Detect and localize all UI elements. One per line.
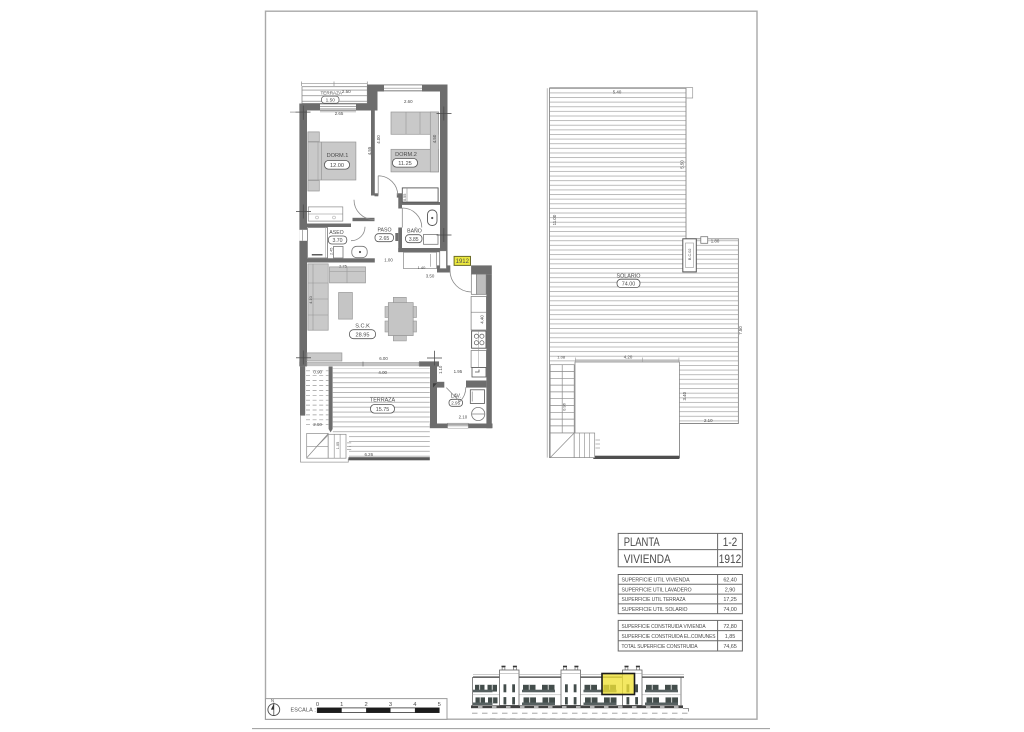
svg-text:1912: 1912 — [456, 259, 470, 265]
svg-text:5.40: 5.40 — [613, 90, 622, 95]
svg-text:TERRAZA: TERRAZA — [321, 90, 343, 95]
svg-text:S.C.K: S.C.K — [355, 324, 370, 330]
svg-text:3.70: 3.70 — [332, 238, 342, 244]
svg-text:1912: 1912 — [719, 552, 742, 566]
svg-text:2: 2 — [364, 702, 367, 708]
svg-text:DORM.2: DORM.2 — [395, 152, 417, 158]
svg-text:3: 3 — [389, 702, 392, 708]
svg-text:0: 0 — [316, 702, 319, 708]
svg-text:4.10: 4.10 — [308, 295, 313, 304]
svg-text:1.80: 1.80 — [711, 239, 720, 244]
svg-text:3.85: 3.85 — [409, 237, 419, 243]
svg-text:1.50: 1.50 — [326, 98, 336, 104]
svg-text:2.60: 2.60 — [313, 422, 322, 427]
svg-text:4.40: 4.40 — [480, 315, 485, 324]
svg-text:17,25: 17,25 — [723, 597, 736, 603]
svg-text:4.00: 4.00 — [378, 370, 387, 375]
svg-text:SUPERFICIE CONSTRUIDA VIVIENDA: SUPERFICIE CONSTRUIDA VIVIENDA — [622, 624, 706, 630]
svg-text:1.40: 1.40 — [418, 265, 427, 270]
svg-text:B.C.02: B.C.02 — [688, 248, 692, 260]
svg-text:SUPERFICIE UTIL LAVADERO: SUPERFICIE UTIL LAVADERO — [622, 587, 693, 593]
svg-text:4.20: 4.20 — [624, 355, 633, 360]
svg-text:5: 5 — [438, 702, 441, 708]
svg-text:PLANTA: PLANTA — [624, 535, 660, 549]
svg-text:SUPERFICIE UTIL TERRAZA: SUPERFICIE UTIL TERRAZA — [622, 597, 686, 603]
svg-text:1.10: 1.10 — [438, 365, 443, 374]
svg-text:4.55: 4.55 — [367, 146, 372, 155]
svg-text:7.50: 7.50 — [738, 326, 743, 335]
svg-text:11.25: 11.25 — [398, 161, 412, 167]
svg-text:2.10: 2.10 — [459, 415, 468, 420]
svg-text:74,00: 74,00 — [723, 607, 736, 613]
svg-text:DORM.1: DORM.1 — [327, 153, 349, 159]
svg-text:12.00: 12.00 — [330, 163, 344, 169]
svg-text:N: N — [271, 698, 274, 703]
svg-text:62,40: 62,40 — [723, 578, 736, 584]
svg-text:1-2: 1-2 — [723, 535, 738, 549]
svg-text:1.95: 1.95 — [454, 369, 463, 374]
svg-text:74.00: 74.00 — [622, 282, 636, 288]
svg-text:3.50: 3.50 — [426, 274, 435, 279]
svg-text:2.60: 2.60 — [404, 99, 413, 104]
svg-text:15.75: 15.75 — [376, 407, 390, 413]
svg-text:ESCALA :: ESCALA : — [291, 708, 317, 714]
svg-text:TERRAZA: TERRAZA — [370, 398, 396, 404]
svg-text:2.65: 2.65 — [335, 111, 344, 116]
svg-text:2.50: 2.50 — [342, 89, 351, 94]
svg-text:28.95: 28.95 — [356, 333, 370, 339]
svg-text:2.75: 2.75 — [339, 263, 348, 268]
svg-text:0.96: 0.96 — [562, 402, 567, 411]
svg-text:1.08: 1.08 — [557, 355, 566, 360]
svg-text:1: 1 — [340, 702, 343, 708]
svg-text:PASO: PASO — [377, 228, 391, 234]
svg-text:0.55: 0.55 — [403, 194, 407, 201]
svg-text:0.90: 0.90 — [313, 370, 322, 375]
svg-text:VIVIENDA: VIVIENDA — [624, 552, 671, 566]
svg-text:1,85: 1,85 — [725, 634, 735, 640]
svg-text:2.10: 2.10 — [704, 418, 713, 423]
svg-text:SUPERFICIE UTIL SOLARIO: SUPERFICIE UTIL SOLARIO — [622, 607, 689, 613]
svg-text:LAV.: LAV. — [451, 393, 461, 399]
svg-text:6.26: 6.26 — [365, 452, 374, 457]
svg-text:1.00: 1.00 — [384, 258, 393, 263]
svg-text:SUPERFICIE UTIL VIVIENDA: SUPERFICIE UTIL VIVIENDA — [622, 578, 690, 584]
svg-text:3.40: 3.40 — [682, 391, 687, 400]
svg-text:4.50: 4.50 — [432, 134, 437, 143]
svg-text:5.50: 5.50 — [680, 160, 685, 169]
svg-text:2.65: 2.65 — [379, 236, 389, 242]
svg-text:1.05: 1.05 — [336, 442, 340, 449]
svg-text:ASEO: ASEO — [329, 230, 343, 236]
svg-text:11.00: 11.00 — [552, 214, 557, 225]
svg-text:2,90: 2,90 — [725, 587, 735, 593]
svg-text:SOLARIO: SOLARIO — [617, 274, 641, 280]
svg-text:4.00: 4.00 — [376, 135, 381, 144]
svg-text:SUPERFICIE CONSTRUIDA EL.COMUN: SUPERFICIE CONSTRUIDA EL.COMUNES — [622, 634, 716, 640]
svg-text:BAÑO: BAÑO — [407, 228, 422, 235]
svg-text:TOTAL SUPERFICIE CONSTRUIDA: TOTAL SUPERFICIE CONSTRUIDA — [622, 644, 698, 650]
svg-text:72,80: 72,80 — [723, 624, 736, 630]
svg-text:74,65: 74,65 — [723, 644, 736, 650]
svg-text:2.45: 2.45 — [329, 248, 333, 255]
svg-text:6.00: 6.00 — [379, 356, 388, 361]
